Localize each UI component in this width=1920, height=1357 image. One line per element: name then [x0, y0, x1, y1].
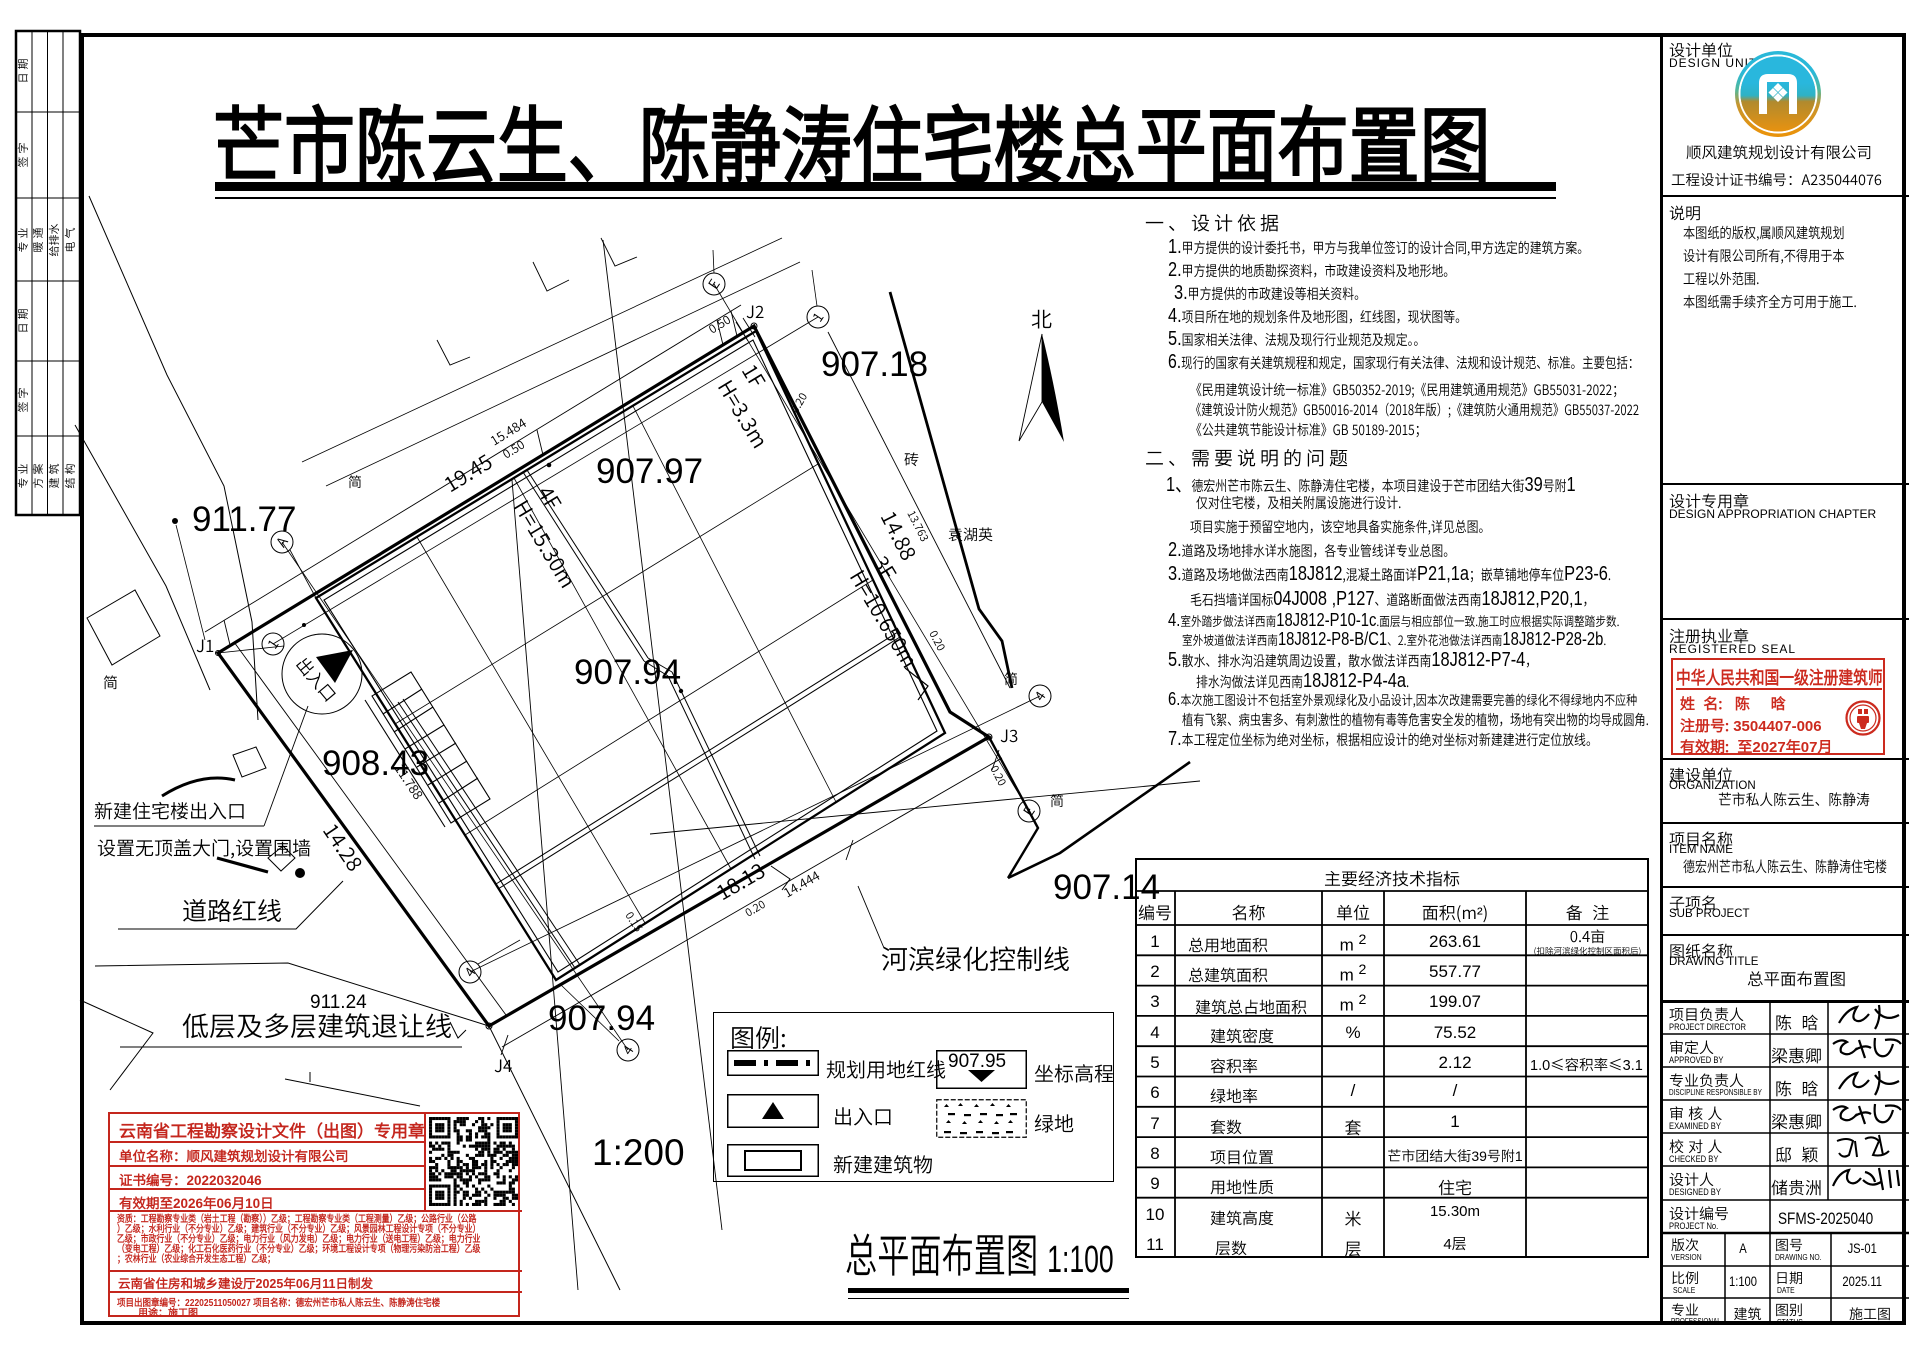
svg-text:E: E: [703, 275, 724, 293]
svg-text:简: 简: [348, 472, 362, 492]
svg-text:911.77: 911.77: [192, 500, 296, 539]
svg-text:908.43: 908.43: [322, 744, 429, 783]
svg-text:907.18: 907.18: [821, 345, 928, 384]
svg-text:J1: J1: [196, 632, 214, 657]
svg-text:907.94: 907.94: [574, 653, 681, 692]
svg-text:4: 4: [1030, 687, 1051, 705]
svg-text:0.50: 0.50: [705, 311, 733, 338]
svg-text:新建住宅楼出入口: 新建住宅楼出入口: [94, 797, 246, 824]
svg-text:简: 简: [1004, 669, 1018, 689]
svg-text:1: 1: [808, 308, 829, 326]
svg-text:907.97: 907.97: [596, 452, 703, 491]
svg-text:袁湖英: 袁湖英: [948, 524, 993, 545]
svg-text:19.45: 19.45: [438, 446, 498, 499]
svg-text:简: 简: [1050, 791, 1064, 811]
svg-text:河滨绿化控制线: 河滨绿化控制线: [881, 938, 1070, 977]
svg-text:1: 1: [263, 635, 284, 653]
svg-text:907.94: 907.94: [548, 999, 655, 1038]
svg-text:J2: J2: [746, 298, 764, 323]
svg-text:简: 简: [103, 672, 118, 693]
svg-text:0.15: 0.15: [622, 908, 647, 934]
svg-text:0.20: 0.20: [925, 628, 949, 654]
svg-text:907.14: 907.14: [1053, 868, 1160, 907]
svg-text:低层及多层建筑退让线: 低层及多层建筑退让线: [182, 1005, 452, 1044]
svg-text:4: 4: [618, 1041, 639, 1059]
svg-text:0.20: 0.20: [986, 763, 1010, 789]
svg-text:道路红线: 道路红线: [182, 892, 282, 928]
svg-text:J3: J3: [1000, 722, 1018, 747]
svg-text:设置无顶盖大门,设置围墙: 设置无顶盖大门,设置围墙: [97, 834, 311, 861]
svg-text:14.444: 14.444: [780, 865, 823, 901]
svg-text:砖: 砖: [904, 449, 919, 470]
svg-text:0.20: 0.20: [742, 896, 768, 920]
svg-text:J4: J4: [494, 1052, 512, 1077]
svg-text:14.28: 14.28: [316, 817, 370, 877]
svg-text:北: 北: [1031, 304, 1052, 334]
svg-text:H=3.3m: H=3.3m: [711, 374, 775, 453]
